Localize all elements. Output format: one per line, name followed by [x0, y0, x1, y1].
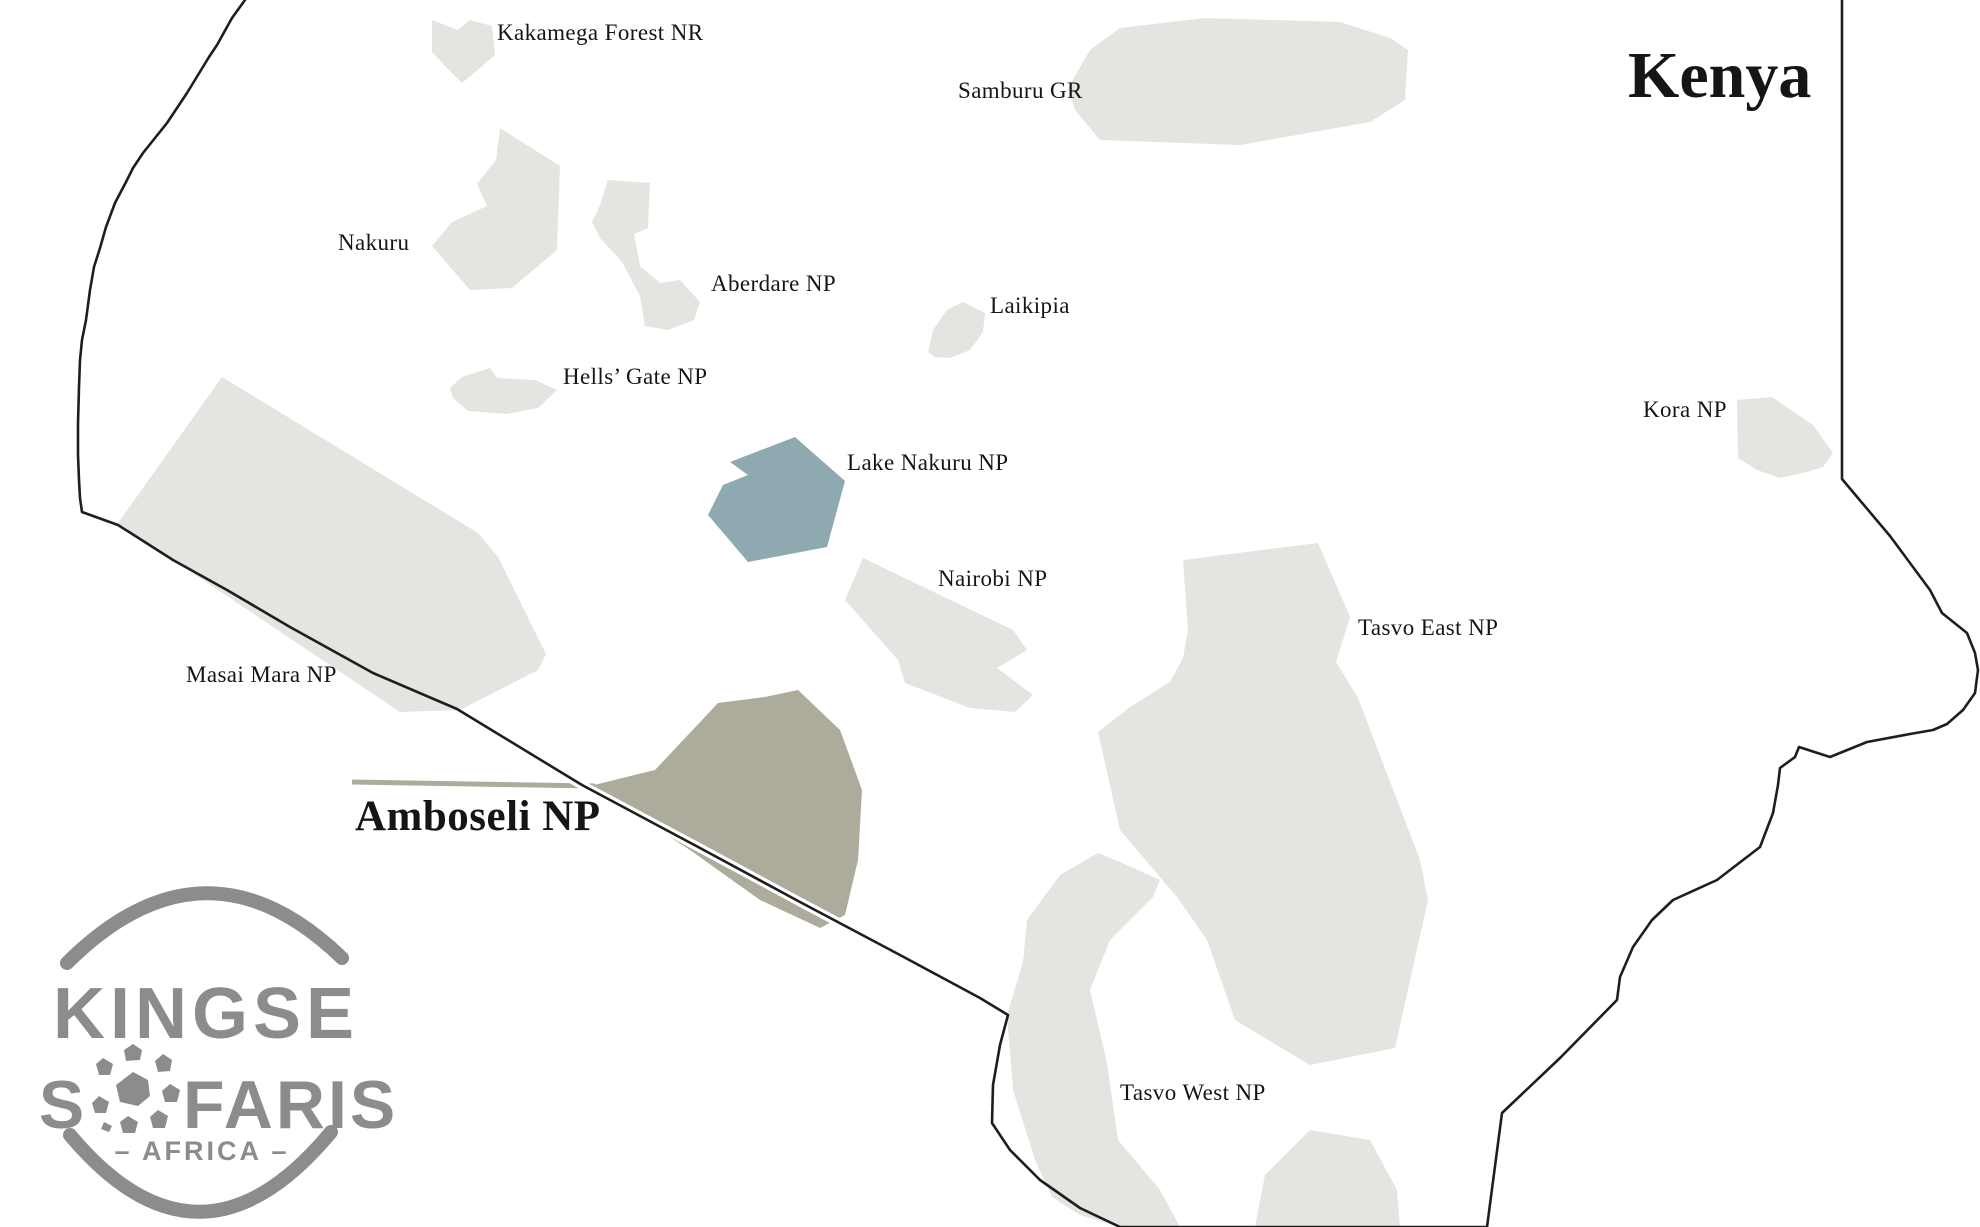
park-shape-hells-gate — [450, 368, 557, 414]
logo: KINGSE S FARIS – AFRICA – — [39, 893, 398, 1212]
label-aberdare: Aberdare NP — [711, 271, 836, 296]
amboseli-leader-line — [352, 782, 595, 786]
park-shape-kora — [1737, 397, 1833, 478]
label-kakamega: Kakamega Forest NR — [497, 20, 704, 45]
label-kora: Kora NP — [1643, 397, 1727, 422]
safari-map-page: Kakamega Forest NR Samburu GR Nakuru Abe… — [0, 0, 1980, 1227]
park-shape-aberdare — [592, 180, 700, 330]
park-shape-tsavo-east-south — [1255, 1130, 1400, 1227]
logo-top-arc — [67, 893, 342, 963]
park-shape-laikipia — [928, 302, 985, 358]
label-nakuru: Nakuru — [338, 230, 409, 255]
park-shape-lake-nakuru-highlight — [708, 437, 845, 562]
park-shape-tsavo-west — [1007, 853, 1180, 1227]
park-shape-nakuru — [432, 128, 560, 290]
park-shape-kakamega — [432, 20, 495, 83]
label-laikipia: Laikipia — [990, 293, 1070, 318]
country-title: Kenya — [1628, 39, 1811, 112]
logo-line1: KINGSE — [53, 974, 359, 1054]
park-shape-samburu — [1068, 18, 1408, 145]
label-masai-mara: Masai Mara NP — [186, 662, 337, 687]
logo-line2-s: S — [39, 1067, 87, 1143]
logo-line2-faris: FARIS — [183, 1067, 398, 1143]
label-tsavo-east: Tasvo East NP — [1358, 615, 1498, 640]
label-nairobi: Nairobi NP — [938, 566, 1047, 591]
label-lake-nakuru: Lake Nakuru NP — [847, 450, 1008, 475]
label-amboseli: Amboseli NP — [355, 793, 601, 840]
label-tsavo-west: Tasvo West NP — [1120, 1080, 1266, 1105]
kenya-map-canvas: Kakamega Forest NR Samburu GR Nakuru Abe… — [0, 0, 1980, 1227]
logo-line3: – AFRICA – — [114, 1136, 289, 1166]
giraffe-spots-icon — [92, 1044, 180, 1133]
label-samburu: Samburu GR — [958, 78, 1083, 103]
park-shapes — [118, 18, 1833, 1227]
label-hells-gate: Hells’ Gate NP — [563, 364, 707, 389]
